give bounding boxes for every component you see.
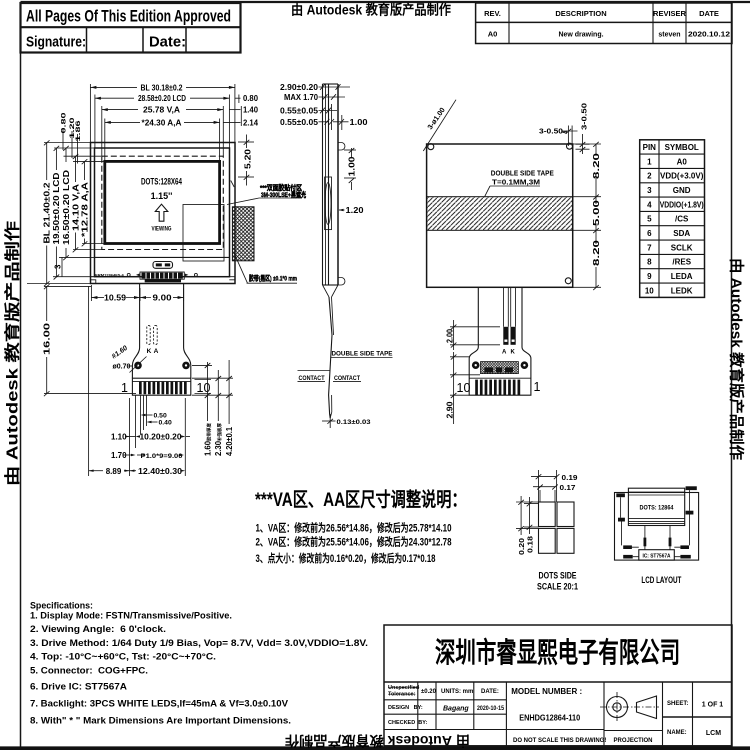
svg-text:3: 3	[647, 186, 652, 195]
svg-text:DOTS SIDE: DOTS SIDE	[539, 571, 577, 581]
svg-text:6: 6	[647, 229, 652, 238]
svg-text:10: 10	[457, 381, 471, 395]
svg-text:***VA区、AA区尺寸调整说明：: ***VA区、AA区尺寸调整说明：	[255, 488, 467, 510]
svg-text:25.78 V,A: 25.78 V,A	[143, 106, 180, 115]
svg-text:5.20: 5.20	[243, 148, 252, 169]
svg-text:0.80: 0.80	[243, 94, 259, 103]
svg-text:Date:: Date:	[149, 34, 186, 51]
svg-text:PIN: PIN	[643, 143, 657, 152]
svg-text:28.58±0.20 LCD: 28.58±0.20 LCD	[138, 94, 186, 103]
svg-text:SHEET:: SHEET:	[667, 701, 688, 707]
svg-text:DOUBLE SIDE TAPE: DOUBLE SIDE TAPE	[332, 351, 394, 358]
svg-text:LEDK: LEDK	[671, 286, 693, 295]
svg-text:1.60: 1.60	[203, 440, 212, 456]
svg-text:14.10 V,A: 14.10 V,A	[71, 184, 80, 231]
svg-text:6. Drive IC: ST7567A: 6. Drive IC: ST7567A	[30, 681, 128, 691]
svg-text:1、VA区：修改前为26.56*14.86，修改后为25.7: 1、VA区：修改前为26.56*14.86，修改后为25.78*14.10	[256, 521, 452, 535]
svg-text:DESIGN BY:: DESIGN BY:	[388, 705, 423, 711]
svg-text:3、点大小：修改前为0.16*0.20，修改后为0.17*0: 3、点大小：修改前为0.16*0.20，修改后为0.17*0.18	[256, 551, 436, 565]
svg-text:A0: A0	[488, 30, 498, 39]
svg-text:***双面胶贴付区: ***双面胶贴付区	[260, 183, 302, 192]
svg-text:1.15'': 1.15''	[151, 191, 173, 201]
svg-text:1: 1	[121, 381, 128, 395]
svg-text:4: 4	[647, 200, 652, 209]
svg-text:2020-10-15: 2020-10-15	[477, 705, 504, 712]
svg-text:3-0.50: 3-0.50	[539, 127, 563, 136]
svg-text:1 OF 1: 1 OF 1	[702, 702, 724, 709]
svg-text:10.20±0.20: 10.20±0.20	[140, 433, 183, 442]
svg-text:10: 10	[645, 286, 654, 295]
svg-text:K: K	[147, 348, 152, 355]
svg-text:19.50±0.20 LCD: 19.50±0.20 LCD	[52, 172, 61, 244]
svg-text:UNITS: mm: UNITS: mm	[441, 689, 473, 695]
svg-text:9: 9	[647, 272, 652, 281]
svg-text:1.86: 1.86	[75, 120, 82, 141]
svg-text:16.00: 16.00	[43, 322, 52, 355]
svg-text:BL 30.18±0.2: BL 30.18±0.2	[141, 83, 183, 92]
svg-text:IC: ST7567A: IC: ST7567A	[643, 554, 672, 560]
svg-text:2.90±0.20: 2.90±0.20	[280, 83, 319, 92]
svg-text:A0: A0	[677, 157, 688, 166]
svg-text:MAX 1.70: MAX 1.70	[284, 93, 319, 102]
svg-text:5: 5	[647, 215, 652, 224]
svg-text:P1.0*9=9.00: P1.0*9=9.00	[141, 453, 183, 460]
svg-text:MODEL NUMBER :: MODEL NUMBER :	[511, 687, 582, 696]
svg-text:2、VA区：修改前为25.56*14.06，修改后为24.3: 2、VA区：修改前为25.56*14.06，修改后为24.30*12.78	[256, 535, 452, 549]
svg-text:0.80: 0.80	[61, 112, 68, 133]
svg-text:Unspecified: Unspecified	[388, 685, 419, 691]
svg-text:K: K	[511, 350, 516, 356]
svg-text:0.19: 0.19	[562, 473, 578, 482]
svg-text:7: 7	[647, 243, 652, 252]
svg-text:A: A	[502, 350, 507, 356]
svg-text:CONTACT: CONTACT	[299, 375, 325, 382]
svg-text:8: 8	[647, 258, 652, 267]
svg-text:8.20: 8.20	[592, 152, 601, 179]
svg-text:ERM12864FS-6: ERM12864FS-6	[95, 273, 124, 278]
svg-text:2.00: 2.00	[445, 329, 454, 343]
svg-text:2.14: 2.14	[243, 118, 259, 127]
svg-text:由 Autodesk 教育版产品制作: 由 Autodesk 教育版产品制作	[3, 220, 22, 486]
svg-text:1.10: 1.10	[111, 433, 127, 442]
svg-text:DO NOT SCALE THIS DRAWING!: DO NOT SCALE THIS DRAWING!	[513, 738, 606, 744]
svg-text:1: 1	[534, 380, 541, 394]
svg-text:深圳市睿显熙电子有限公司: 深圳市睿显熙电子有限公司	[435, 636, 680, 669]
svg-text:Tolerance:: Tolerance:	[388, 692, 416, 698]
svg-text:5.00: 5.00	[592, 199, 601, 226]
svg-text:3M-300LSE+黑遮光: 3M-300LSE+黑遮光	[261, 190, 306, 199]
svg-text:8.20: 8.20	[592, 239, 601, 266]
svg-text:Specifications:: Specifications:	[30, 601, 93, 611]
svg-text:5. Connector: COG+FPC.: 5. Connector: COG+FPC.	[30, 665, 148, 675]
svg-text:7. Backlight: 3PCS WHITE LEDS,: 7. Backlight: 3PCS WHITE LEDS,If=45mA & …	[30, 698, 288, 708]
svg-text:9.00: 9.00	[153, 294, 173, 303]
svg-text:3: 3	[53, 264, 62, 269]
svg-text:VDD(+3.0V): VDD(+3.0V)	[660, 172, 704, 181]
svg-text:New drawing.: New drawing.	[558, 32, 603, 39]
svg-text:4.20±0.1: 4.20±0.1	[225, 426, 234, 456]
svg-text:0.55±0.05: 0.55±0.05	[280, 107, 319, 116]
svg-text:DATE: DATE	[699, 9, 719, 18]
svg-text:DATE:: DATE:	[481, 689, 499, 695]
svg-text:DOTS: 12864: DOTS: 12864	[640, 505, 674, 512]
svg-text:Signature:: Signature:	[26, 34, 86, 51]
svg-text:10.59: 10.59	[104, 294, 127, 303]
svg-text:10: 10	[197, 381, 211, 395]
svg-text:DOTS:128X64: DOTS:128X64	[141, 177, 182, 187]
svg-text:Bagang: Bagang	[443, 706, 469, 713]
svg-text:ENHDG12864-110: ENHDG12864-110	[519, 714, 580, 723]
svg-text:2.90: 2.90	[445, 401, 454, 419]
svg-text:ø0.70: ø0.70	[113, 364, 131, 371]
svg-text:0.13±0.03: 0.13±0.03	[337, 419, 371, 426]
svg-text:SDA: SDA	[673, 229, 690, 238]
svg-text:BL 21.40±0.2: BL 21.40±0.2	[42, 182, 51, 244]
svg-text:2. Viewing Angle: 6 0'clock.: 2. Viewing Angle: 6 0'clock.	[30, 624, 166, 634]
svg-text:0.50: 0.50	[154, 413, 167, 420]
svg-text:0.17: 0.17	[560, 483, 576, 492]
svg-text:DOUBLE SIDE TAPE: DOUBLE SIDE TAPE	[491, 169, 554, 178]
svg-text:2: 2	[647, 172, 652, 181]
svg-text:*24.30 A,A: *24.30 A,A	[142, 118, 182, 127]
svg-text:CHECKED BY:: CHECKED BY:	[388, 720, 427, 726]
svg-text:SCALE 20:1: SCALE 20:1	[537, 582, 578, 592]
svg-text:GND: GND	[673, 186, 691, 195]
svg-text:16.50±0.20 LCD: 16.50±0.20 LCD	[62, 170, 71, 245]
svg-text:由 Autodesk 教育版产品制作: 由 Autodesk 教育版产品制作	[291, 2, 451, 18]
svg-text:胶带(黑区) ±0.1*0 mm: 胶带(黑区) ±0.1*0 mm	[249, 274, 297, 283]
svg-text:由 Autodesk 教育版产品制作: 由 Autodesk 教育版产品制作	[284, 733, 470, 749]
svg-text:补强板厚: 补强板厚	[216, 423, 223, 441]
svg-text:胶带厚度: 胶带厚度	[205, 423, 212, 442]
svg-text:PROJECTION: PROJECTION	[613, 738, 652, 744]
svg-text:1.40: 1.40	[243, 106, 259, 115]
svg-text:/RES: /RES	[672, 258, 691, 267]
svg-text:SCLK: SCLK	[671, 243, 693, 252]
svg-text:LCD LAYOUT: LCD LAYOUT	[641, 575, 681, 585]
svg-text:T=0.1MM,3M: T=0.1MM,3M	[492, 178, 540, 187]
svg-text:1: 1	[647, 157, 652, 166]
svg-text:CONTACT: CONTACT	[334, 375, 360, 382]
svg-text:steven: steven	[658, 32, 680, 39]
svg-text:1.00: 1.00	[350, 118, 369, 127]
svg-text:LEDA: LEDA	[671, 272, 693, 281]
svg-text:由 Autodesk 教育版产品制作: 由 Autodesk 教育版产品制作	[728, 258, 746, 460]
svg-text:All Pages Of This Edition Appr: All Pages Of This Edition Approved	[26, 8, 231, 26]
svg-text:8.89: 8.89	[106, 467, 122, 476]
svg-text:REVISER: REVISER	[653, 9, 687, 18]
svg-text:NAME:: NAME:	[667, 730, 687, 736]
svg-text:8. With" * " Mark Dimensions A: 8. With" * " Mark Dimensions Are Importa…	[30, 715, 291, 725]
svg-text:12.40±0.30: 12.40±0.30	[138, 467, 183, 476]
svg-text:/CS: /CS	[675, 215, 689, 224]
svg-text:0.18: 0.18	[525, 536, 534, 553]
svg-text:VDDIO(+1.8V): VDDIO(+1.8V)	[660, 200, 704, 209]
svg-text:1. Display Mode: FSTN/Transmis: 1. Display Mode: FSTN/Transmissive/Posit…	[30, 611, 232, 621]
svg-text:1.00: 1.00	[348, 156, 357, 177]
svg-text:0.55±0.05: 0.55±0.05	[280, 118, 319, 127]
svg-text:2.30: 2.30	[214, 440, 223, 456]
svg-text:*12.78 A,A: *12.78 A,A	[80, 182, 89, 237]
svg-text:0.40: 0.40	[159, 420, 172, 427]
svg-text:1.70: 1.70	[111, 451, 127, 460]
svg-text:A: A	[154, 348, 159, 355]
svg-text:3-0.50: 3-0.50	[579, 103, 588, 130]
svg-text:4. Top: -10°C~+60°C, Tst: -20°: 4. Top: -10°C~+60°C, Tst: -20°C~+70°C.	[30, 652, 216, 662]
svg-text:LCM: LCM	[706, 730, 721, 737]
svg-text:2020.10.12: 2020.10.12	[688, 32, 730, 39]
svg-text:REV.: REV.	[484, 9, 501, 18]
svg-text:±0.20: ±0.20	[421, 689, 437, 695]
svg-text:DESCRIPTION: DESCRIPTION	[555, 9, 606, 18]
svg-text:3. Drive Method: 1/64 Duty 1/9: 3. Drive Method: 1/64 Duty 1/9 Bias, Vop…	[30, 638, 368, 648]
svg-text:VIEWING: VIEWING	[152, 226, 172, 233]
svg-text:SYMBOL: SYMBOL	[665, 143, 699, 152]
svg-text:1.20: 1.20	[346, 206, 365, 215]
